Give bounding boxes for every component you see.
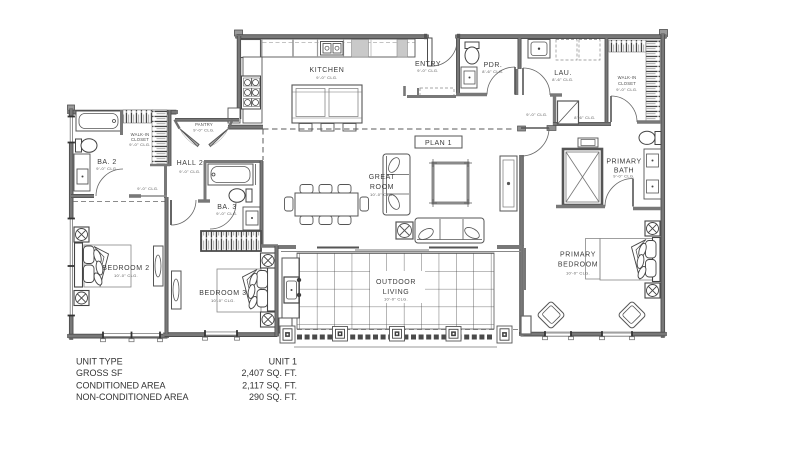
svg-text:10'-0" CLG.: 10'-0" CLG. (384, 297, 408, 302)
svg-text:8'-6" CLG.: 8'-6" CLG. (574, 115, 595, 120)
svg-text:9'-0" CLG.: 9'-0" CLG. (316, 75, 337, 80)
svg-text:UNIT 1: UNIT 1 (269, 356, 297, 366)
svg-text:PRIMARY: PRIMARY (560, 252, 596, 259)
svg-text:LIVING: LIVING (383, 289, 410, 296)
svg-text:GROSS SF: GROSS SF (76, 368, 123, 378)
svg-text:9'-0" CLG.: 9'-0" CLG. (179, 169, 200, 174)
svg-text:PRIMARY: PRIMARY (606, 159, 641, 166)
svg-text:10'-0" CLG.: 10'-0" CLG. (114, 273, 138, 278)
svg-text:10'-0" CLG.: 10'-0" CLG. (211, 298, 235, 303)
svg-text:9'-0" CLG.: 9'-0" CLG. (137, 186, 158, 191)
svg-text:ENTRY: ENTRY (415, 61, 441, 68)
svg-text:2,407 SQ. FT.: 2,407 SQ. FT. (241, 368, 297, 378)
svg-text:9'-0" CLG.: 9'-0" CLG. (616, 87, 637, 92)
svg-text:10'-0" CLG.: 10'-0" CLG. (566, 271, 590, 276)
svg-text:LAU.: LAU. (554, 70, 572, 77)
svg-text:PANTRY: PANTRY (195, 122, 213, 127)
svg-text:CONDITIONED AREA: CONDITIONED AREA (76, 380, 166, 390)
svg-text:HALL 2: HALL 2 (177, 160, 204, 167)
svg-text:BEDROOM: BEDROOM (558, 262, 598, 269)
svg-text:CLOSET: CLOSET (618, 81, 636, 86)
svg-text:BA. 3: BA. 3 (217, 204, 237, 211)
svg-text:NON-CONDITIONED AREA: NON-CONDITIONED AREA (76, 392, 189, 402)
svg-text:ROOM: ROOM (370, 184, 394, 191)
svg-text:9'-0" CLG.: 9'-0" CLG. (129, 142, 150, 147)
svg-text:GREAT: GREAT (369, 174, 396, 181)
svg-text:WALK-IN: WALK-IN (618, 75, 637, 80)
svg-text:BA. 2: BA. 2 (97, 159, 117, 166)
svg-text:9'-0" CLG.: 9'-0" CLG. (417, 68, 438, 73)
svg-text:9'-0" CLG.: 9'-0" CLG. (216, 211, 237, 216)
svg-text:9'-0" CLG.: 9'-0" CLG. (526, 112, 547, 117)
svg-text:290 SQ. FT.: 290 SQ. FT. (249, 392, 297, 402)
svg-text:BEDROOM 3: BEDROOM 3 (199, 290, 246, 297)
svg-text:OUTDOOR: OUTDOOR (376, 279, 416, 286)
svg-text:10'-0" CLG.: 10'-0" CLG. (370, 192, 394, 197)
svg-text:8'-6" CLG.: 8'-6" CLG. (482, 69, 503, 74)
svg-text:PLAN 1: PLAN 1 (425, 140, 452, 147)
svg-text:KITCHEN: KITCHEN (310, 67, 345, 74)
svg-text:PDR.: PDR. (484, 62, 503, 69)
svg-text:8'-6" CLG.: 8'-6" CLG. (552, 77, 573, 82)
svg-text:UNIT TYPE: UNIT TYPE (76, 356, 123, 366)
svg-text:2,117 SQ. FT.: 2,117 SQ. FT. (242, 380, 297, 390)
svg-text:9'-0" CLG.: 9'-0" CLG. (613, 174, 634, 179)
svg-text:9'-0" CLG.: 9'-0" CLG. (193, 128, 214, 133)
svg-text:BEDROOM 2: BEDROOM 2 (102, 265, 149, 272)
